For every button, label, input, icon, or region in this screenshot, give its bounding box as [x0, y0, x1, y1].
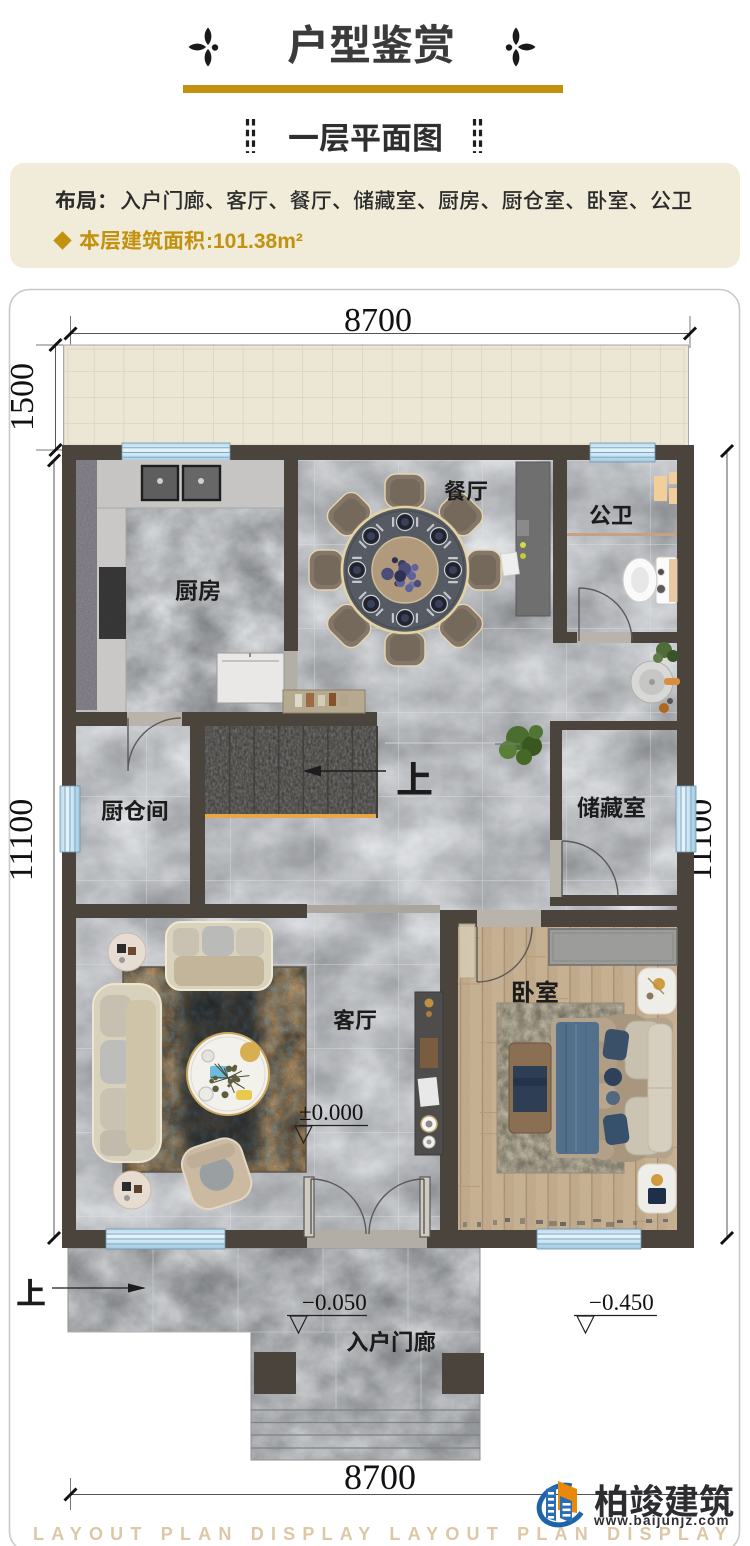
svg-text:8700: 8700	[344, 1457, 416, 1497]
svg-text:−0.050: −0.050	[302, 1290, 367, 1315]
svg-text:11100: 11100	[3, 799, 40, 881]
svg-text::101.38m²: :101.38m²	[206, 230, 303, 253]
svg-text:−0.450: −0.450	[589, 1290, 654, 1315]
svg-text:1500: 1500	[4, 363, 41, 431]
svg-text:±0.000: ±0.000	[299, 1100, 363, 1125]
svg-text:www.baijunjz.com: www.baijunjz.com	[593, 1513, 730, 1528]
